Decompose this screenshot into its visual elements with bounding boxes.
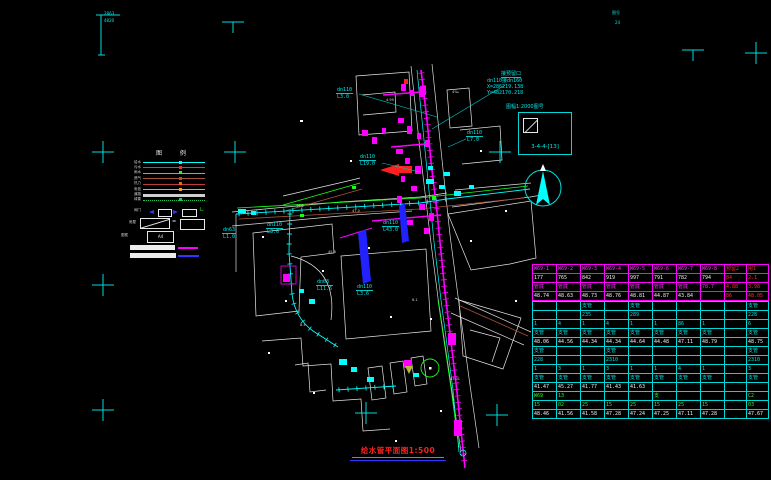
table-cell: 44.56	[557, 338, 581, 347]
table-cell	[629, 392, 653, 401]
table-cell	[725, 374, 747, 383]
legend-row-label: 电信	[127, 187, 141, 191]
table-cell: 支管	[653, 329, 677, 338]
table-cell: W69-3	[581, 265, 605, 274]
table-cell: 支	[653, 392, 677, 401]
table-cell	[747, 383, 769, 392]
table-cell: 支管	[533, 329, 557, 338]
table-cell: 支管	[533, 374, 557, 383]
map-elevation-text: 47.0	[352, 209, 360, 213]
table-cell	[725, 383, 747, 392]
table-cell: 86	[725, 292, 747, 301]
table-cell: 管底	[677, 283, 701, 292]
table-cell	[677, 356, 701, 365]
legend-row-line	[143, 194, 205, 196]
table-cell: 48.73	[581, 292, 605, 301]
legend-row-label: 雨水	[127, 170, 141, 174]
table-cell: 6	[747, 320, 769, 329]
table-cell: 48.75	[747, 338, 769, 347]
table-cell	[701, 302, 725, 311]
legend-symbol-box-2	[182, 209, 197, 217]
pipe-table-section-1: 支管支管支管2352892281414118616支管支管支管支管支管支管支管支…	[532, 301, 769, 419]
table-cell	[629, 347, 653, 356]
table-cell: 1	[653, 320, 677, 329]
table-cell: 4	[605, 320, 629, 329]
table-cell: 48.81	[629, 292, 653, 301]
table-cell: 2310	[747, 356, 769, 365]
table-cell: 13	[557, 392, 581, 401]
title-underline-1	[352, 457, 444, 458]
table-cell: 4	[677, 365, 701, 374]
table-cell	[677, 302, 701, 311]
table-cell: 45.27	[557, 383, 581, 392]
table-cell: 47.11	[677, 410, 701, 419]
legend-row-line	[143, 167, 205, 168]
table-cell: 1	[653, 365, 677, 374]
table-cell: 47.67	[747, 410, 769, 419]
legend-bar-2	[130, 253, 176, 258]
pipe-label: dn63L1.0	[222, 227, 236, 240]
hatch-square-icon	[523, 118, 538, 133]
table-cell	[533, 311, 557, 320]
table-cell: 235	[581, 311, 605, 320]
table-cell: 03	[747, 401, 769, 410]
table-cell: 25	[629, 401, 653, 410]
table-cell: 86	[677, 320, 701, 329]
pipe-label: dn110L19.0	[359, 154, 376, 167]
table-cell	[677, 383, 701, 392]
table-cell	[701, 356, 725, 365]
map-elevation-text: 6.1	[412, 298, 418, 302]
legend-parallelogram	[140, 218, 170, 229]
table-cell: W69-2	[557, 265, 581, 274]
map-elevation-text: 46.2	[296, 204, 304, 208]
legend-row-line	[143, 184, 205, 185]
valve-right-icon	[173, 210, 178, 214]
table-cell: 782	[677, 274, 701, 283]
table-cell: 1	[629, 320, 653, 329]
table-cell: C2	[747, 392, 769, 401]
table-cell: 15	[533, 401, 557, 410]
legend-row-label: 燃气	[127, 176, 141, 180]
table-cell	[701, 383, 725, 392]
table-cell: 支管	[581, 302, 605, 311]
blue-wedges	[358, 203, 409, 284]
table-cell: 3	[557, 365, 581, 374]
table-cell: 支管	[629, 374, 653, 383]
cad-sheet: 2863 4820 图号 24 接预留口 dn110接dn160 X=28621…	[0, 0, 771, 480]
table-cell: 支管	[557, 329, 581, 338]
table-cell: 支管	[605, 347, 629, 356]
legend-row-line	[143, 189, 205, 190]
legend-blue-line	[178, 255, 199, 257]
legend-row-line	[143, 162, 205, 163]
table-cell: 2.1	[747, 274, 769, 283]
table-cell: 765	[557, 274, 581, 283]
table-cell: 25	[677, 401, 701, 410]
legend-row-line	[143, 173, 205, 174]
table-cell: 3	[747, 365, 769, 374]
legend-row-marker	[179, 161, 182, 164]
legend-row-marker	[179, 177, 182, 180]
table-cell: 44.34	[605, 338, 629, 347]
pipe-table-section-0: W69-1W69-2W69-3W69-4W69-5W69-6W69-7W69-8…	[532, 264, 769, 301]
callout-coord-y: Y=482170.218	[487, 90, 523, 96]
table-cell: W69-4	[605, 265, 629, 274]
table-cell: 管底	[533, 283, 557, 292]
legend-row-label: 道路	[127, 192, 141, 196]
parcel-outlines	[253, 72, 536, 431]
table-cell	[701, 392, 725, 401]
table-cell: 48.79	[701, 338, 725, 347]
table-cell	[605, 311, 629, 320]
legend-symbol-box-1	[158, 209, 172, 217]
pipe-label: dn110L3.6	[266, 222, 283, 235]
pipe-label: dn110L3.6	[356, 284, 373, 297]
table-cell: 919	[605, 274, 629, 283]
sheet-index-box: 3-4-4-[13]	[518, 112, 572, 155]
table-cell: 47.25	[653, 410, 677, 419]
table-cell: 228	[747, 311, 769, 320]
table-cell: 41.58	[581, 410, 605, 419]
table-cell: 842	[581, 274, 605, 283]
north-arrow	[525, 164, 561, 206]
table-cell: 支管	[653, 374, 677, 383]
table-cell	[653, 347, 677, 356]
table-cell: 支管	[581, 374, 605, 383]
table-cell	[677, 311, 701, 320]
table-cell: 41.77	[581, 383, 605, 392]
table-cell: 甩1	[747, 265, 769, 274]
table-cell: 支管	[629, 302, 653, 311]
table-cell: 228	[533, 356, 557, 365]
table-cell: 48.46	[533, 410, 557, 419]
table-cell: 管底	[653, 283, 677, 292]
table-cell	[725, 410, 747, 419]
legend-row-marker	[179, 166, 182, 169]
table-cell	[557, 302, 581, 311]
table-cell: 支管	[701, 329, 725, 338]
table-cell: 289	[629, 311, 653, 320]
legend-header: 图 例	[156, 148, 194, 157]
table-cell: 支管	[677, 329, 701, 338]
table-cell: 3	[605, 365, 629, 374]
table-cell	[557, 311, 581, 320]
table-cell: 794	[701, 274, 725, 283]
table-cell: 1	[581, 320, 605, 329]
table-cell: 47.24	[629, 410, 653, 419]
table-cell: 48.74	[533, 292, 557, 301]
pipe-label: dn110L7.0	[466, 130, 483, 143]
table-cell: 02	[557, 401, 581, 410]
legend-row-label: 给水	[127, 160, 141, 164]
table-cell	[653, 302, 677, 311]
legend-row-label: 热力	[127, 181, 141, 185]
pipe-label: dn110L43.0	[382, 220, 399, 233]
table-cell: 47.28	[701, 410, 725, 419]
table-cell	[557, 356, 581, 365]
table-cell	[701, 292, 725, 301]
pipe-label: dn63L11.6	[316, 279, 333, 292]
table-cell: 1	[701, 365, 725, 374]
sheet-index-code: 3-4-4-[13]	[519, 144, 571, 150]
table-cell: 支管	[605, 329, 629, 338]
sheet-ref-1: 图号	[612, 10, 620, 15]
legend-boxes-label: 房屋	[122, 220, 136, 224]
table-cell	[677, 347, 701, 356]
legend-row-label: 污水	[127, 165, 141, 169]
cyan-fittings	[238, 166, 474, 382]
table-cell: 25	[581, 401, 605, 410]
map-elevation-text: 45.8	[328, 250, 336, 254]
table-cell: 791	[653, 274, 677, 283]
table-cell: 管底	[557, 283, 581, 292]
table-cell	[725, 392, 747, 401]
table-cell: 预留2	[725, 265, 747, 274]
table-cell	[581, 392, 605, 401]
table-cell	[629, 356, 653, 365]
corner-coord-x: 2863	[104, 11, 114, 16]
table-cell: 管底	[629, 283, 653, 292]
table-cell: 支管	[677, 374, 701, 383]
leader-lines	[359, 85, 505, 172]
table-cell: 1	[581, 365, 605, 374]
table-cell	[605, 302, 629, 311]
legend-frame-label: 图框	[114, 233, 128, 237]
table-cell: 管底	[605, 283, 629, 292]
table-cell: 48.05	[747, 292, 769, 301]
table-cell: 78.7	[701, 283, 725, 292]
legend-rect	[180, 219, 205, 230]
legend-row-marker	[179, 198, 182, 201]
table-cell	[725, 320, 747, 329]
table-cell	[653, 383, 677, 392]
road-edge-lines	[232, 64, 542, 452]
table-cell: 2310	[605, 356, 629, 365]
valve-left-icon	[149, 210, 154, 214]
pipe-label: dn110L3.0	[336, 87, 353, 100]
table-cell: 41.56	[557, 410, 581, 419]
table-cell: 4	[557, 320, 581, 329]
sheet-index-title: 图幅1:2000图号	[506, 103, 544, 110]
table-cell: 41.63	[629, 383, 653, 392]
map-elevation-text: 4.99	[386, 98, 394, 102]
table-cell	[725, 401, 747, 410]
table-cell	[581, 347, 605, 356]
table-cell	[725, 356, 747, 365]
table-cell: 47.28	[605, 410, 629, 419]
table-cell	[557, 347, 581, 356]
legend-row-line	[143, 200, 205, 201]
map-elevation-text: 43.01	[450, 377, 460, 381]
table-cell: 支管	[533, 347, 557, 356]
table-cell	[701, 311, 725, 320]
map-elevation-text: 4‰	[452, 90, 459, 94]
table-cell: 支管	[557, 374, 581, 383]
table-cell: 支管	[701, 374, 725, 383]
table-cell: 支管	[747, 347, 769, 356]
table-cell	[677, 392, 701, 401]
table-cell	[725, 365, 747, 374]
connection-callout: 接预留口 dn110接dn160 X=286219.138 Y=482170.2…	[487, 71, 523, 96]
table-cell: W69-6	[653, 265, 677, 274]
table-cell: 48.06	[533, 338, 557, 347]
table-cell	[725, 338, 747, 347]
callout-line1: 接预留口	[501, 71, 521, 78]
table-cell	[653, 356, 677, 365]
corner-coord-y: 4820	[104, 18, 114, 23]
legend-frame-box: A4	[147, 231, 174, 243]
legend-symbols-label: 阀门	[127, 208, 141, 212]
title-underline-2	[350, 460, 446, 461]
table-cell: 48.76	[605, 292, 629, 301]
legend-angle-icon: ∟	[199, 206, 204, 213]
table-cell: 支管	[747, 329, 769, 338]
table-cell	[725, 302, 747, 311]
table-cell: 1	[533, 320, 557, 329]
magenta-fittings	[283, 84, 462, 436]
table-cell	[701, 347, 725, 356]
legend-magenta-line	[178, 247, 198, 249]
table-cell	[581, 356, 605, 365]
table-cell: 84	[725, 274, 747, 283]
legend-row-marker	[179, 182, 182, 185]
table-cell	[725, 329, 747, 338]
table-cell: 管底	[581, 283, 605, 292]
table-cell: W69-5	[629, 265, 653, 274]
legend-row-label: 绿篱	[127, 197, 141, 201]
table-cell: 1	[629, 365, 653, 374]
table-cell: 3.98	[747, 283, 769, 292]
table-cell: 44.64	[629, 338, 653, 347]
table-cell: 47.11	[677, 338, 701, 347]
table-cell: 44.48	[653, 338, 677, 347]
table-cell: W69	[533, 392, 557, 401]
table-cell: 44.87	[653, 292, 677, 301]
table-cell: W69-8	[701, 265, 725, 274]
table-cell: 15	[653, 401, 677, 410]
table-cell: 15	[605, 401, 629, 410]
table-cell: 1	[533, 365, 557, 374]
table-cell: 48.63	[557, 292, 581, 301]
olive-mark	[405, 366, 413, 374]
table-cell: 997	[629, 274, 653, 283]
table-cell	[653, 311, 677, 320]
table-cell: 支管	[581, 329, 605, 338]
legend-bar-1	[130, 245, 175, 250]
table-cell: 43.84	[677, 292, 701, 301]
table-cell: 1	[701, 320, 725, 329]
table-cell: W69-7	[677, 265, 701, 274]
legend-equals: =	[172, 219, 176, 225]
legend-row-marker	[179, 171, 182, 174]
sheet-ref-2: 24	[615, 20, 620, 25]
table-cell: 支管	[629, 329, 653, 338]
table-cell: W69-1	[533, 265, 557, 274]
table-cell: 41.47	[533, 383, 557, 392]
table-cell: 支管	[747, 302, 769, 311]
table-cell: 支管	[605, 374, 629, 383]
table-cell: 4.88	[725, 283, 747, 292]
legend-row-line	[143, 178, 205, 179]
map-elevation-text: 8.4	[300, 323, 306, 327]
table-cell: 177	[533, 274, 557, 283]
table-cell: 41.43	[605, 383, 629, 392]
legend-row-marker	[179, 188, 182, 191]
table-cell	[533, 302, 557, 311]
drawing-title: 给水管平面图1:500	[350, 446, 446, 455]
table-cell: 15	[701, 401, 725, 410]
table-cell	[725, 347, 747, 356]
table-cell	[605, 392, 629, 401]
table-cell	[725, 311, 747, 320]
table-cell: 44.34	[581, 338, 605, 347]
table-cell: 支管	[747, 374, 769, 383]
